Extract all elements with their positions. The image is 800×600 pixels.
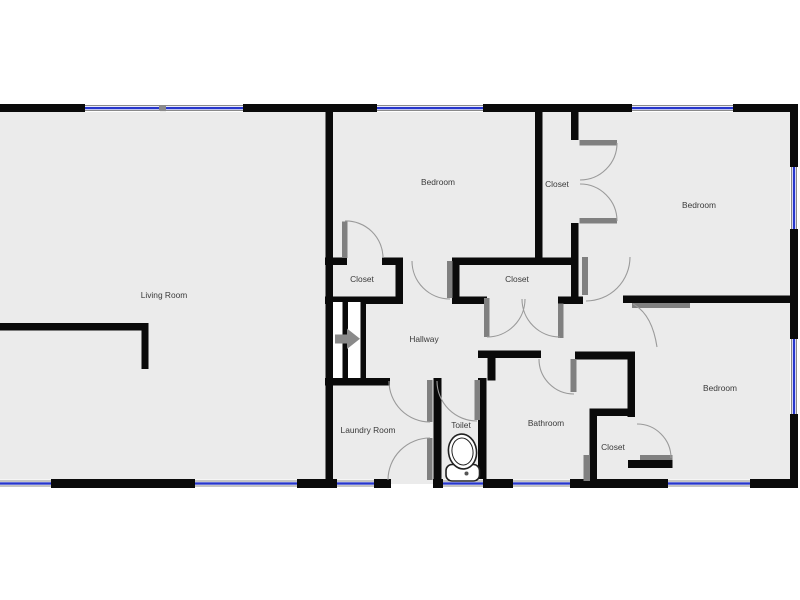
closet-bedroom3-label: Closet — [601, 442, 625, 452]
window — [513, 480, 570, 488]
window — [790, 167, 798, 229]
window — [85, 104, 160, 112]
floor-plan-canvas: Living Room Bedroom Closet Bedroom Close… — [0, 0, 800, 600]
window — [632, 104, 733, 112]
closet-central-label: Closet — [505, 274, 529, 284]
living-room-label: Living Room — [141, 290, 188, 300]
bedroom-top-right-label: Bedroom — [682, 200, 716, 210]
closet-bedroom1-label: Closet — [350, 274, 374, 284]
bedroom-top-middle-label: Bedroom — [421, 177, 455, 187]
closet-tall-label: Closet — [545, 179, 569, 189]
laundry-room-label: Laundry Room — [341, 425, 396, 435]
bedroom-bottom-right-label: Bedroom — [703, 383, 737, 393]
bathroom-label: Bathroom — [528, 418, 564, 428]
stairs — [333, 302, 366, 379]
window — [0, 480, 51, 488]
window — [790, 339, 798, 414]
hallway-label: Hallway — [409, 334, 439, 344]
window — [337, 480, 374, 488]
toilet-label: Toilet — [451, 420, 471, 430]
window — [377, 104, 483, 112]
window — [668, 480, 750, 488]
window — [195, 480, 297, 488]
window — [166, 104, 243, 112]
window-mullion — [159, 105, 166, 111]
floor-plan-drawing: Living Room Bedroom Closet Bedroom Close… — [0, 0, 800, 600]
